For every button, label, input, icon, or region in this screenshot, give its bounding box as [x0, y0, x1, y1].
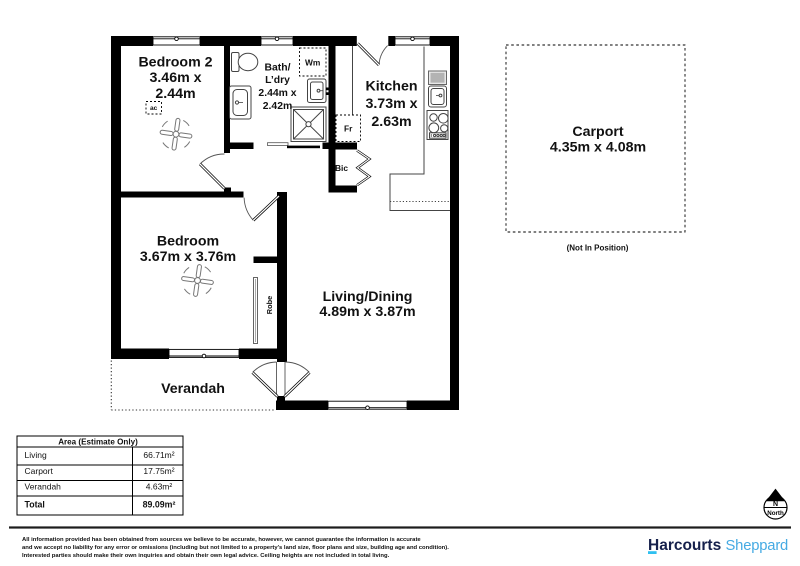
svg-text:L’dry: L’dry — [265, 75, 290, 86]
svg-text:17.75m²: 17.75m² — [143, 466, 174, 476]
svg-text:and we accept no liability for: and we accept no liability for any error… — [22, 545, 449, 551]
svg-text:Living: Living — [25, 450, 47, 460]
svg-text:Sheppard: Sheppard — [726, 538, 789, 554]
svg-text:4.89m x 3.87m: 4.89m x 3.87m — [319, 304, 415, 320]
svg-text:Wm: Wm — [305, 57, 320, 67]
svg-text:Fr: Fr — [344, 123, 353, 133]
svg-text:(Not In Position): (Not In Position) — [567, 244, 629, 253]
svg-text:Living/Dining: Living/Dining — [323, 289, 413, 305]
svg-text:Bic: Bic — [335, 163, 348, 173]
svg-text:Harcourts: Harcourts — [648, 537, 721, 554]
svg-text:ac: ac — [150, 105, 158, 112]
svg-text:Robe: Robe — [265, 296, 274, 314]
svg-text:Carport: Carport — [572, 124, 624, 140]
svg-text:2.44m x: 2.44m x — [258, 88, 296, 99]
svg-text:2.44m: 2.44m — [155, 86, 195, 102]
svg-text:N: N — [773, 501, 778, 508]
svg-text:Kitchen: Kitchen — [365, 78, 417, 94]
svg-text:All information provided has b: All information provided has been obtain… — [22, 537, 421, 543]
svg-text:4.63m²: 4.63m² — [146, 481, 173, 491]
svg-text:3.67m x 3.76m: 3.67m x 3.76m — [140, 249, 236, 265]
svg-text:4.35m x 4.08m: 4.35m x 4.08m — [550, 140, 646, 156]
svg-text:Bath/: Bath/ — [265, 62, 291, 73]
svg-text:Bedroom: Bedroom — [157, 234, 219, 250]
svg-text:Verandah: Verandah — [161, 381, 225, 397]
svg-text:66.71m²: 66.71m² — [143, 450, 174, 460]
svg-text:2.42m: 2.42m — [263, 101, 292, 112]
svg-text:North: North — [767, 510, 784, 517]
svg-text:3.73m x: 3.73m x — [365, 96, 417, 112]
svg-text:Verandah: Verandah — [25, 481, 62, 491]
svg-text:3.46m x: 3.46m x — [149, 70, 201, 86]
svg-text:2.63m: 2.63m — [371, 114, 411, 130]
svg-text:Total: Total — [25, 499, 45, 509]
svg-text:89.09m²: 89.09m² — [143, 499, 176, 509]
svg-text:Bedroom 2: Bedroom 2 — [138, 55, 212, 71]
svg-text:Area (Estimate Only): Area (Estimate Only) — [58, 437, 138, 446]
svg-text:Interested parties should make: Interested parties should make their own… — [22, 553, 390, 559]
svg-text:Carport: Carport — [25, 466, 54, 476]
